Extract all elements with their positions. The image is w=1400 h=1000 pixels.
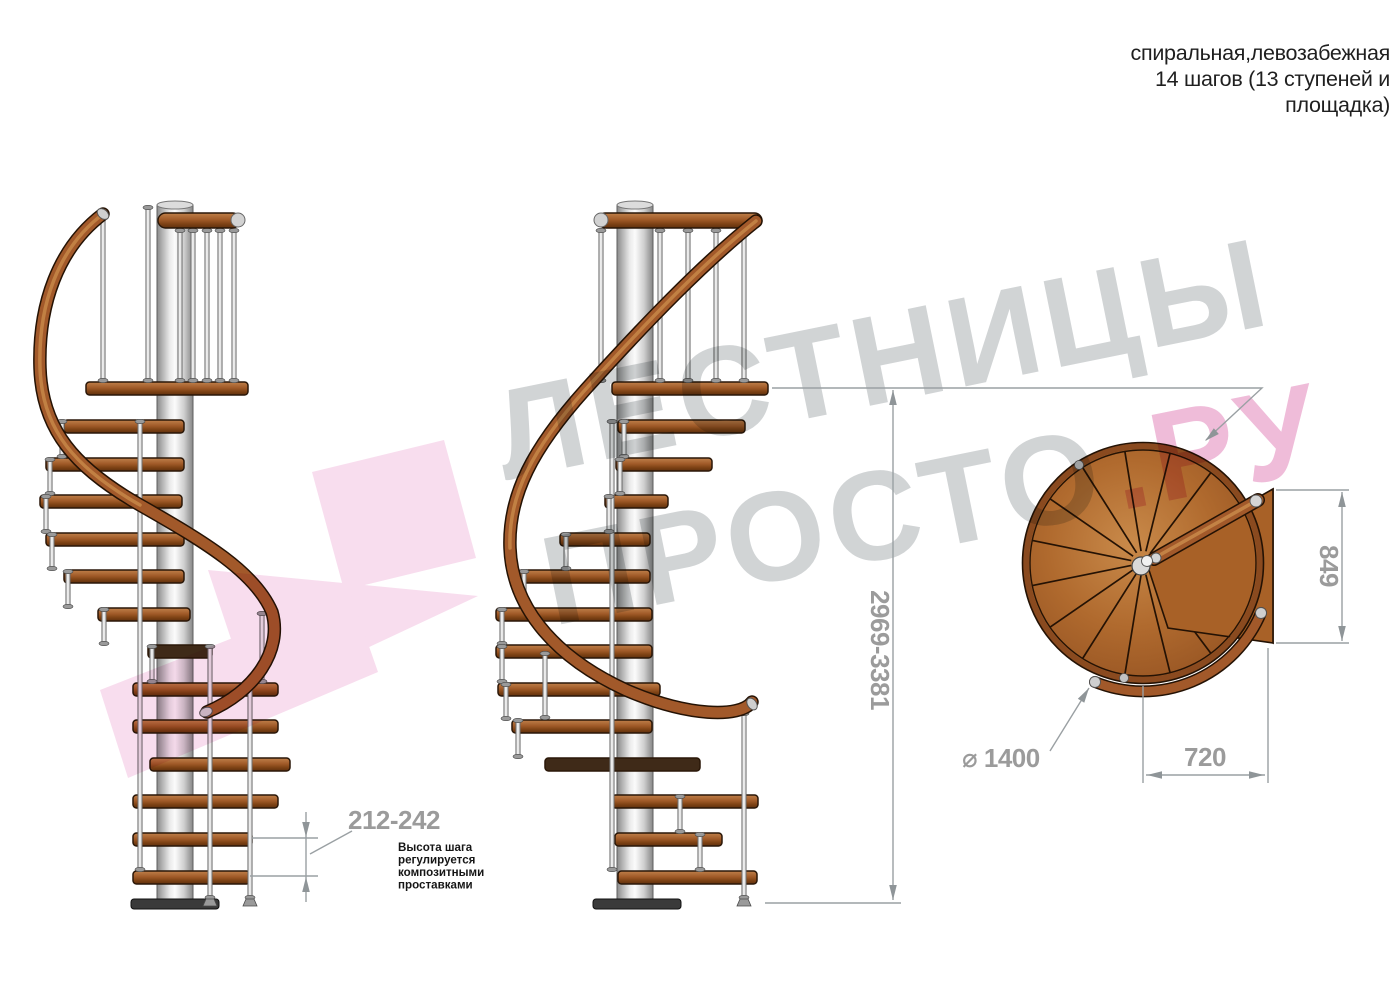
step-tread [46, 458, 184, 471]
baluster-rod [178, 229, 182, 382]
dimension-arrowhead [1338, 492, 1346, 507]
step-tread [98, 608, 190, 621]
step-tread [150, 758, 290, 771]
rod-foot [737, 899, 751, 906]
platform-depth-dimension: 849 [1314, 545, 1344, 587]
step-height-dimension: 212-242 [348, 805, 440, 835]
baluster-rod [101, 216, 105, 382]
baluster-rod [742, 712, 746, 899]
rim-connector [1120, 674, 1129, 683]
step-tread [133, 871, 250, 884]
baluster-rod [232, 229, 236, 382]
baluster-rod [504, 683, 508, 720]
step-tread [615, 833, 722, 846]
svg-text:спиральная,левозабежная: спиральная,левозабежная [1131, 41, 1390, 65]
step-tread [64, 570, 184, 583]
step-tread [86, 382, 248, 395]
baluster-rod [138, 420, 142, 871]
baluster-rod [218, 229, 222, 382]
baluster-rod [66, 570, 70, 608]
svg-text:композитными: композитными [398, 866, 484, 879]
svg-text:14 шагов (13 ступеней и: 14 шагов (13 ступеней и [1155, 67, 1390, 91]
baluster-rod [48, 458, 52, 495]
svg-text:Высота шага: Высота шага [398, 841, 473, 854]
watermark-suffix: .РУ [1097, 355, 1336, 537]
svg-text:проставками: проставками [398, 879, 473, 892]
spiral-staircase-drawing: ЛЕСТНИЦЫ ПРОСТО.РУ 2969-3381 849 720 ⌀ 1… [0, 0, 1400, 1000]
handrail-end-cap [231, 213, 245, 227]
baluster-rod [50, 533, 54, 570]
step-tread [40, 495, 182, 508]
dimension-arrowhead [889, 885, 897, 900]
dimension-arrowhead [1249, 771, 1264, 779]
step-tread [64, 420, 184, 433]
svg-text:регулируется: регулируется [398, 854, 475, 867]
baluster-rod [698, 833, 702, 871]
baluster-rod [146, 206, 150, 382]
step-tread [512, 720, 652, 733]
dimension-arrowhead [1078, 688, 1089, 703]
platform-width-dimension: 720 [1184, 742, 1226, 772]
diameter-dimension: ⌀ 1400 [962, 743, 1040, 773]
handrail-end-cap [594, 213, 608, 227]
baluster-rod [102, 608, 106, 645]
dimension-arrowhead [1147, 771, 1162, 779]
baluster-rod [516, 719, 520, 758]
baluster-rod [678, 795, 682, 833]
step-tread [545, 758, 700, 771]
step-tread [46, 533, 184, 546]
baluster-rod [500, 645, 504, 683]
staircase-side-view-left [40, 201, 290, 909]
svg-text:площадка): площадка) [1285, 93, 1390, 117]
total-height-dimension: 2969-3381 [865, 590, 895, 710]
baluster-rod [205, 229, 209, 382]
page-title: спиральная,левозабежная 14 шагов (13 сту… [1131, 41, 1390, 117]
technical-drawing-page: ЛЕСТНИЦЫ ПРОСТО.РУ 2969-3381 849 720 ⌀ 1… [0, 0, 1400, 1000]
baluster-rod [44, 495, 48, 533]
baluster-rod [543, 652, 547, 719]
step-height-note: Высота шага регулируется композитными пр… [398, 841, 484, 892]
dimension-arrowhead [302, 822, 310, 837]
step-tread [618, 871, 757, 884]
dimension-arrowhead [302, 877, 310, 892]
baluster-rod [610, 420, 614, 871]
base-flange [593, 899, 681, 909]
rod-foot [243, 899, 257, 906]
baluster-rod [191, 229, 195, 382]
dimension-arrowhead [1338, 626, 1346, 641]
step-tread [133, 795, 278, 808]
baluster-rod [500, 608, 504, 645]
step-tread [133, 833, 252, 846]
